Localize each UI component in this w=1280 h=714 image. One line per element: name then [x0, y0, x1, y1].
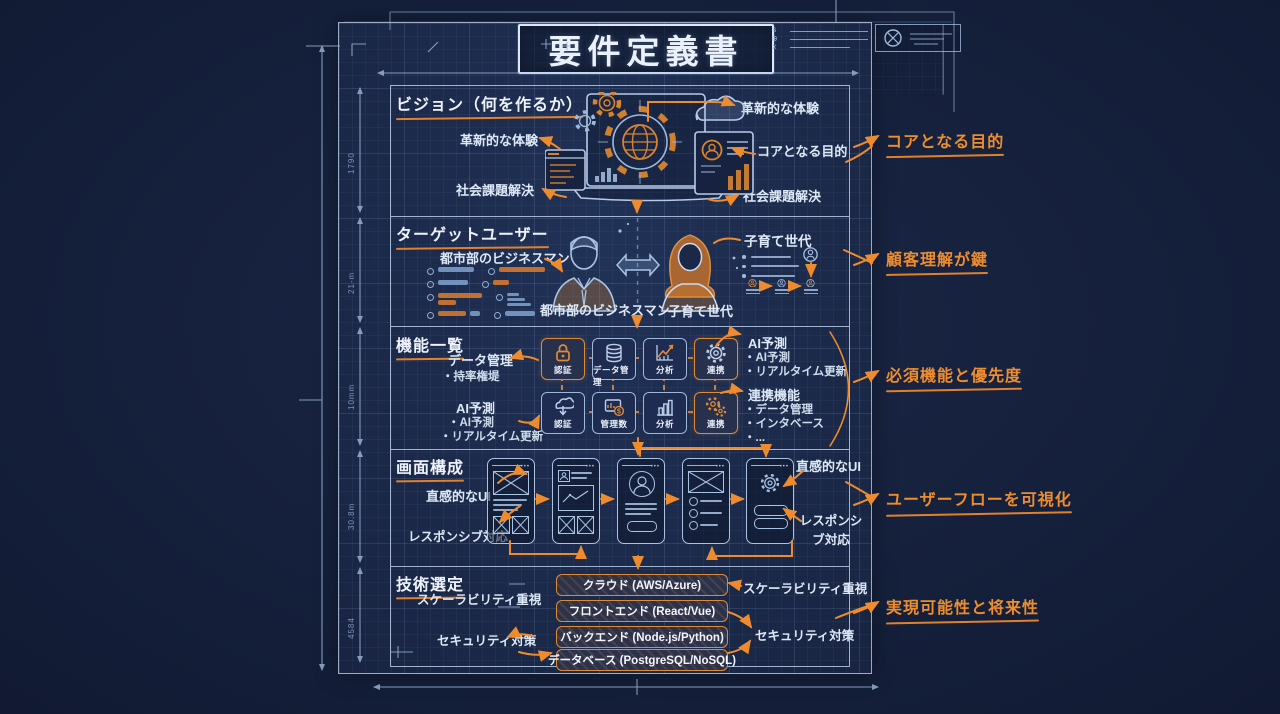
vision-label-left-1: 革新的な体験	[460, 130, 538, 149]
feature-box-analytics2: 分析	[643, 392, 687, 434]
section-divider	[391, 449, 849, 450]
persona-female-label: 子育て世代	[668, 301, 733, 320]
section-heading-screens: 画面構成	[396, 454, 464, 482]
feature-box-admin: $ 管理数	[592, 392, 636, 434]
phone-wireframe-2: •••	[552, 458, 600, 544]
phone-wireframe-3: •••	[617, 458, 665, 544]
double-arrow-icon	[616, 253, 660, 277]
gears-icon	[705, 396, 727, 418]
svg-text:$: $	[617, 409, 621, 416]
features-note-left-1: データ管理	[448, 350, 513, 369]
persona-note-list	[742, 255, 799, 278]
vision-label-right-2: コアとなる目的	[757, 141, 847, 160]
features-note-left-2c: ・リアルタイム更新	[440, 428, 543, 444]
bar-chart-icon	[654, 396, 676, 418]
gear-icon	[759, 472, 781, 494]
dimension-mark: 4584	[347, 595, 356, 639]
tech-label-left-1: スケーラビリティ重視	[417, 589, 541, 608]
feature-box-data: データ管理	[592, 338, 636, 380]
title-block-marks: s ⊕ x	[771, 26, 778, 52]
tech-label-right-1: スケーラビリティ重視	[743, 578, 867, 597]
blueprint-canvas: { "page": { "title": "要件定義書" }, "title_b…	[0, 0, 1280, 714]
feature-box-analytics: 分析	[643, 338, 687, 380]
content-layer: 要件定義書 s ⊕ x ビジョン（何を作るか） 革新的な体験 社会課題解決 革新…	[0, 0, 1280, 714]
section-divider	[391, 326, 849, 327]
tech-box-cloud: クラウド (AWS/Azure)	[556, 574, 728, 596]
features-note-right-2d: ・...	[744, 429, 765, 445]
dimension-mark: 10mm	[347, 366, 356, 410]
tech-box-backend: バックエンド (Node.js/Python)	[556, 626, 728, 648]
database-icon	[603, 342, 625, 364]
feature-box-auth: 認証	[541, 338, 585, 380]
feature-box-auth2: 認証	[541, 392, 585, 434]
document-title-box: 要件定義書	[518, 24, 774, 74]
persona-male-label: 都市部のビジネスマン	[540, 300, 670, 319]
feature-box-integration: 連携	[694, 338, 738, 380]
page-title: 要件定義書	[549, 25, 744, 73]
persona-stats-legend	[427, 267, 553, 319]
section-divider	[391, 216, 849, 217]
monitor-icon: $	[603, 396, 625, 418]
mini-window	[545, 150, 585, 190]
vision-label-left-2: 社会課題解決	[456, 180, 534, 199]
dimension-mark: 30.8m	[347, 486, 356, 530]
dimension-mark: 1790	[347, 130, 356, 174]
tech-box-frontend: フロントエンド (React/Vue)	[556, 600, 728, 622]
phone-wireframe-4: •••	[682, 458, 730, 544]
feature-box-integration2: 連携	[694, 392, 738, 434]
line-chart-icon	[654, 342, 676, 364]
features-note-left-1-sub: ・持率権堤	[442, 368, 500, 384]
screens-label-left-1: 直感的なUI	[426, 486, 491, 505]
tech-box-database: データベース (PostgreSQL/NoSQL)	[556, 649, 728, 671]
stamp-box	[875, 24, 961, 52]
tech-label-left-2: セキュリティ対策	[437, 630, 536, 649]
screens-label-right-2: レスポンシブ対応	[794, 512, 868, 550]
user-node-icon	[745, 279, 760, 294]
target-label-right: 子育て世代	[744, 230, 812, 250]
gear-icon	[705, 342, 727, 364]
features-note-right-1c: ・リアルタイム更新	[744, 363, 847, 379]
phone-wireframe-5: •••	[746, 458, 794, 544]
user-node-icon	[803, 247, 818, 262]
user-node-icon	[803, 279, 818, 294]
dashboard-panel	[695, 132, 753, 194]
screens-label-right-1: 直感的なUI	[796, 456, 861, 475]
vision-illustration	[545, 92, 757, 212]
dimension-mark: 21-m	[347, 250, 356, 294]
phone-wireframe-1: •••	[487, 458, 535, 544]
lock-icon	[552, 342, 574, 364]
tech-label-right-2: セキュリティ対策	[755, 625, 854, 644]
circle-x-icon	[876, 25, 960, 51]
user-node-icon	[774, 279, 789, 294]
cloud-icon	[552, 396, 574, 418]
section-divider	[391, 566, 849, 567]
section-heading-target-users: ターゲットユーザー	[396, 221, 549, 249]
